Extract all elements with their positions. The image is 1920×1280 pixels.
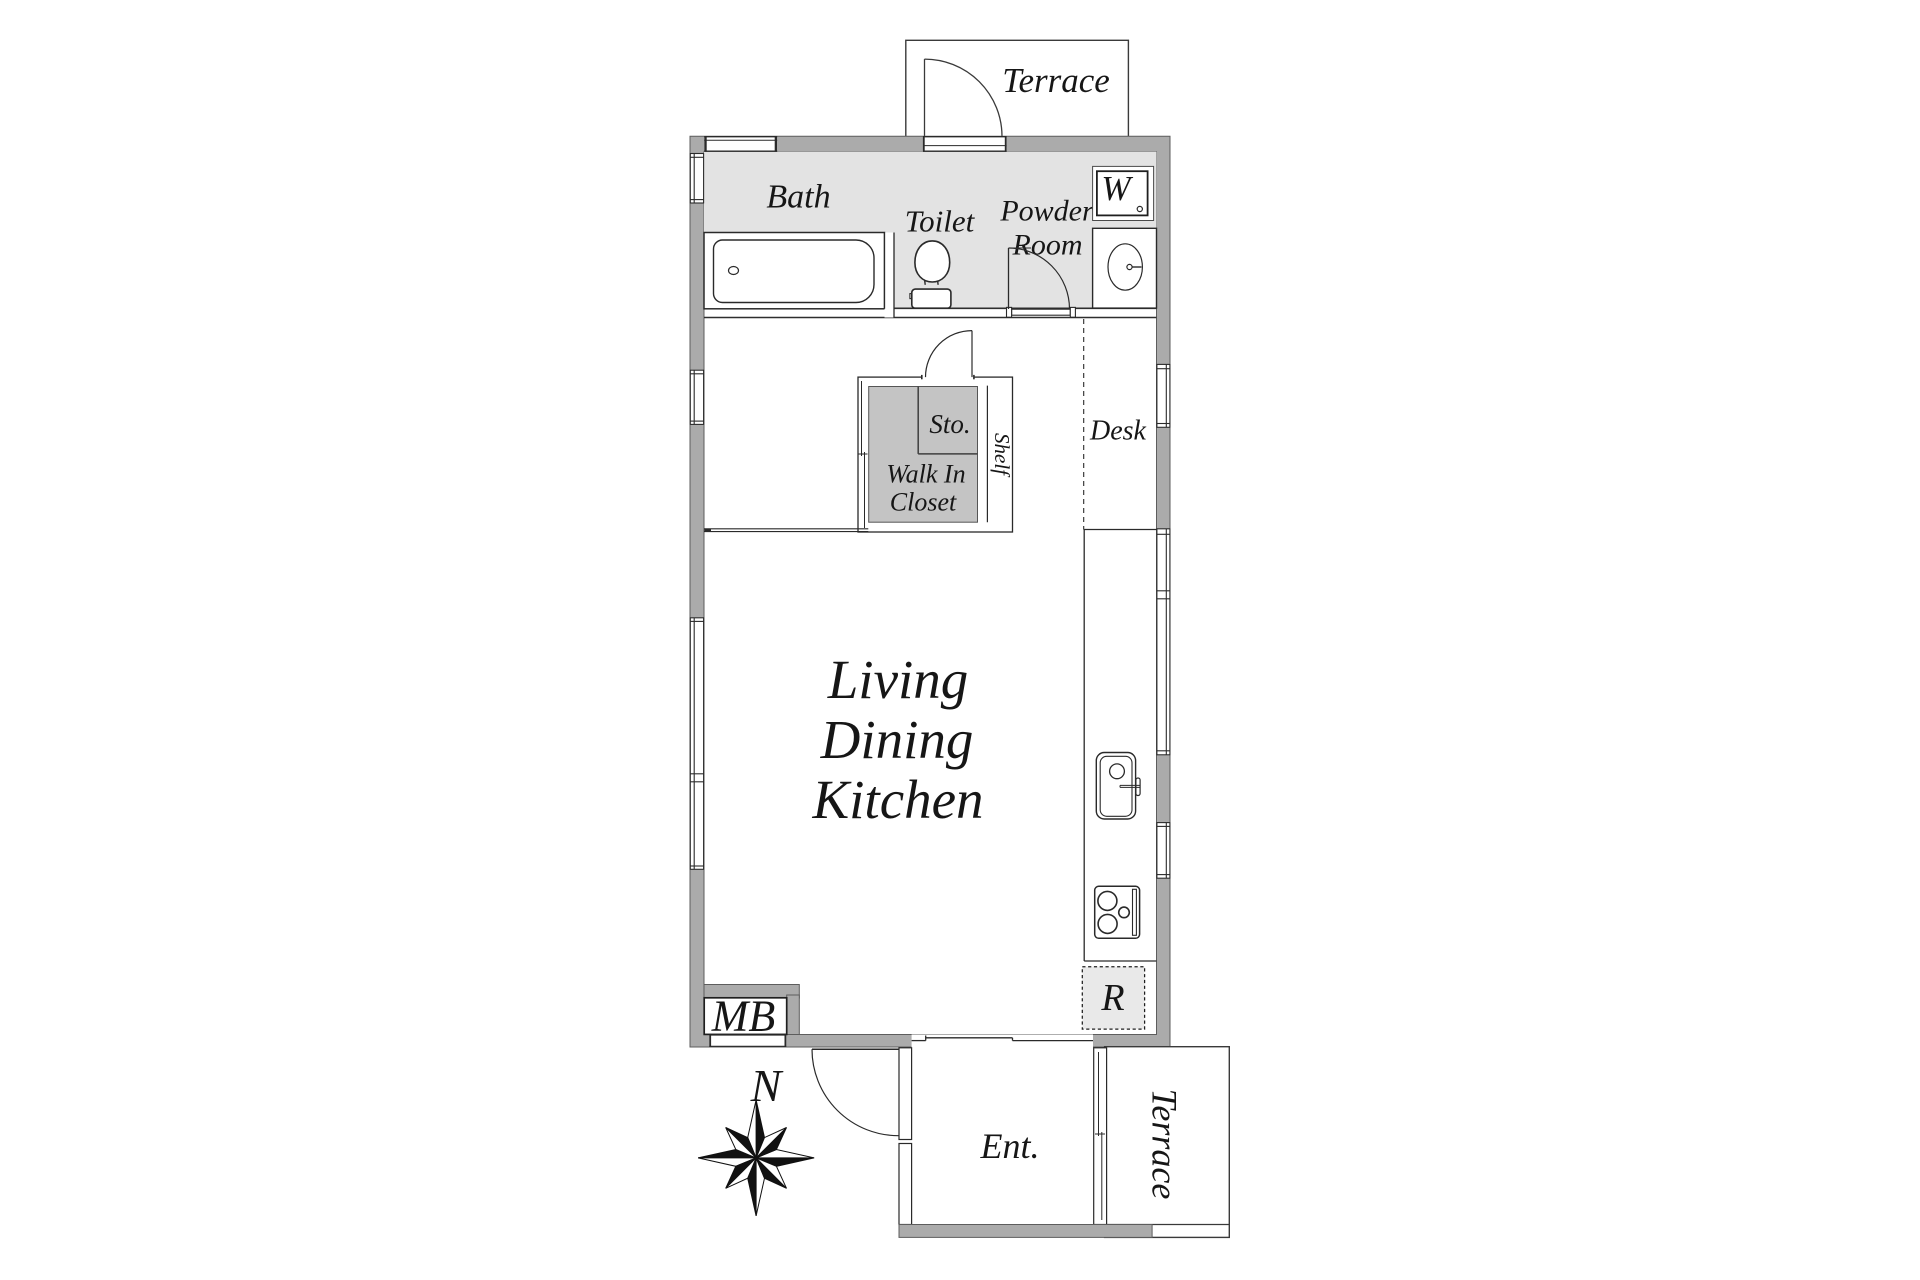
svg-text:MB: MB (711, 992, 776, 1041)
svg-text:Dining: Dining (820, 709, 974, 770)
svg-text:W: W (1101, 169, 1133, 208)
svg-text:Terrace: Terrace (1002, 61, 1110, 100)
svg-text:Kitchen: Kitchen (811, 769, 983, 830)
svg-text:Toilet: Toilet (905, 204, 976, 239)
svg-text:Desk: Desk (1089, 416, 1147, 447)
svg-text:Terrace: Terrace (1145, 1089, 1185, 1200)
svg-text:Closet: Closet (890, 488, 957, 517)
svg-text:R: R (1100, 977, 1124, 1019)
svg-text:Room: Room (1012, 229, 1083, 262)
svg-text:Shelf: Shelf (990, 433, 1014, 478)
svg-text:Living: Living (827, 649, 969, 710)
svg-text:Powder: Powder (999, 195, 1094, 228)
svg-text:Sto.: Sto. (929, 409, 970, 439)
svg-text:Walk In: Walk In (886, 460, 965, 489)
svg-text:Ent.: Ent. (980, 1126, 1040, 1166)
svg-text:N: N (750, 1060, 784, 1111)
svg-text:Bath: Bath (766, 179, 830, 216)
